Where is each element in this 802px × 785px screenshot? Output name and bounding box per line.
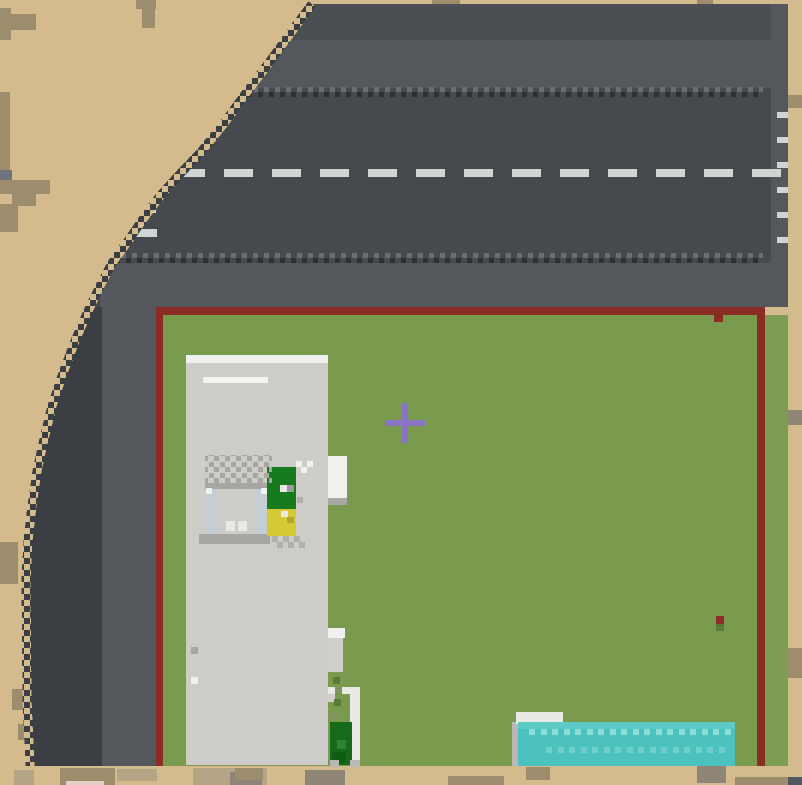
shop-building[interactable] <box>186 355 347 765</box>
game-scene-canvas[interactable] <box>0 0 802 785</box>
back-enclosure[interactable] <box>328 677 360 767</box>
game-viewport[interactable] <box>0 0 802 785</box>
